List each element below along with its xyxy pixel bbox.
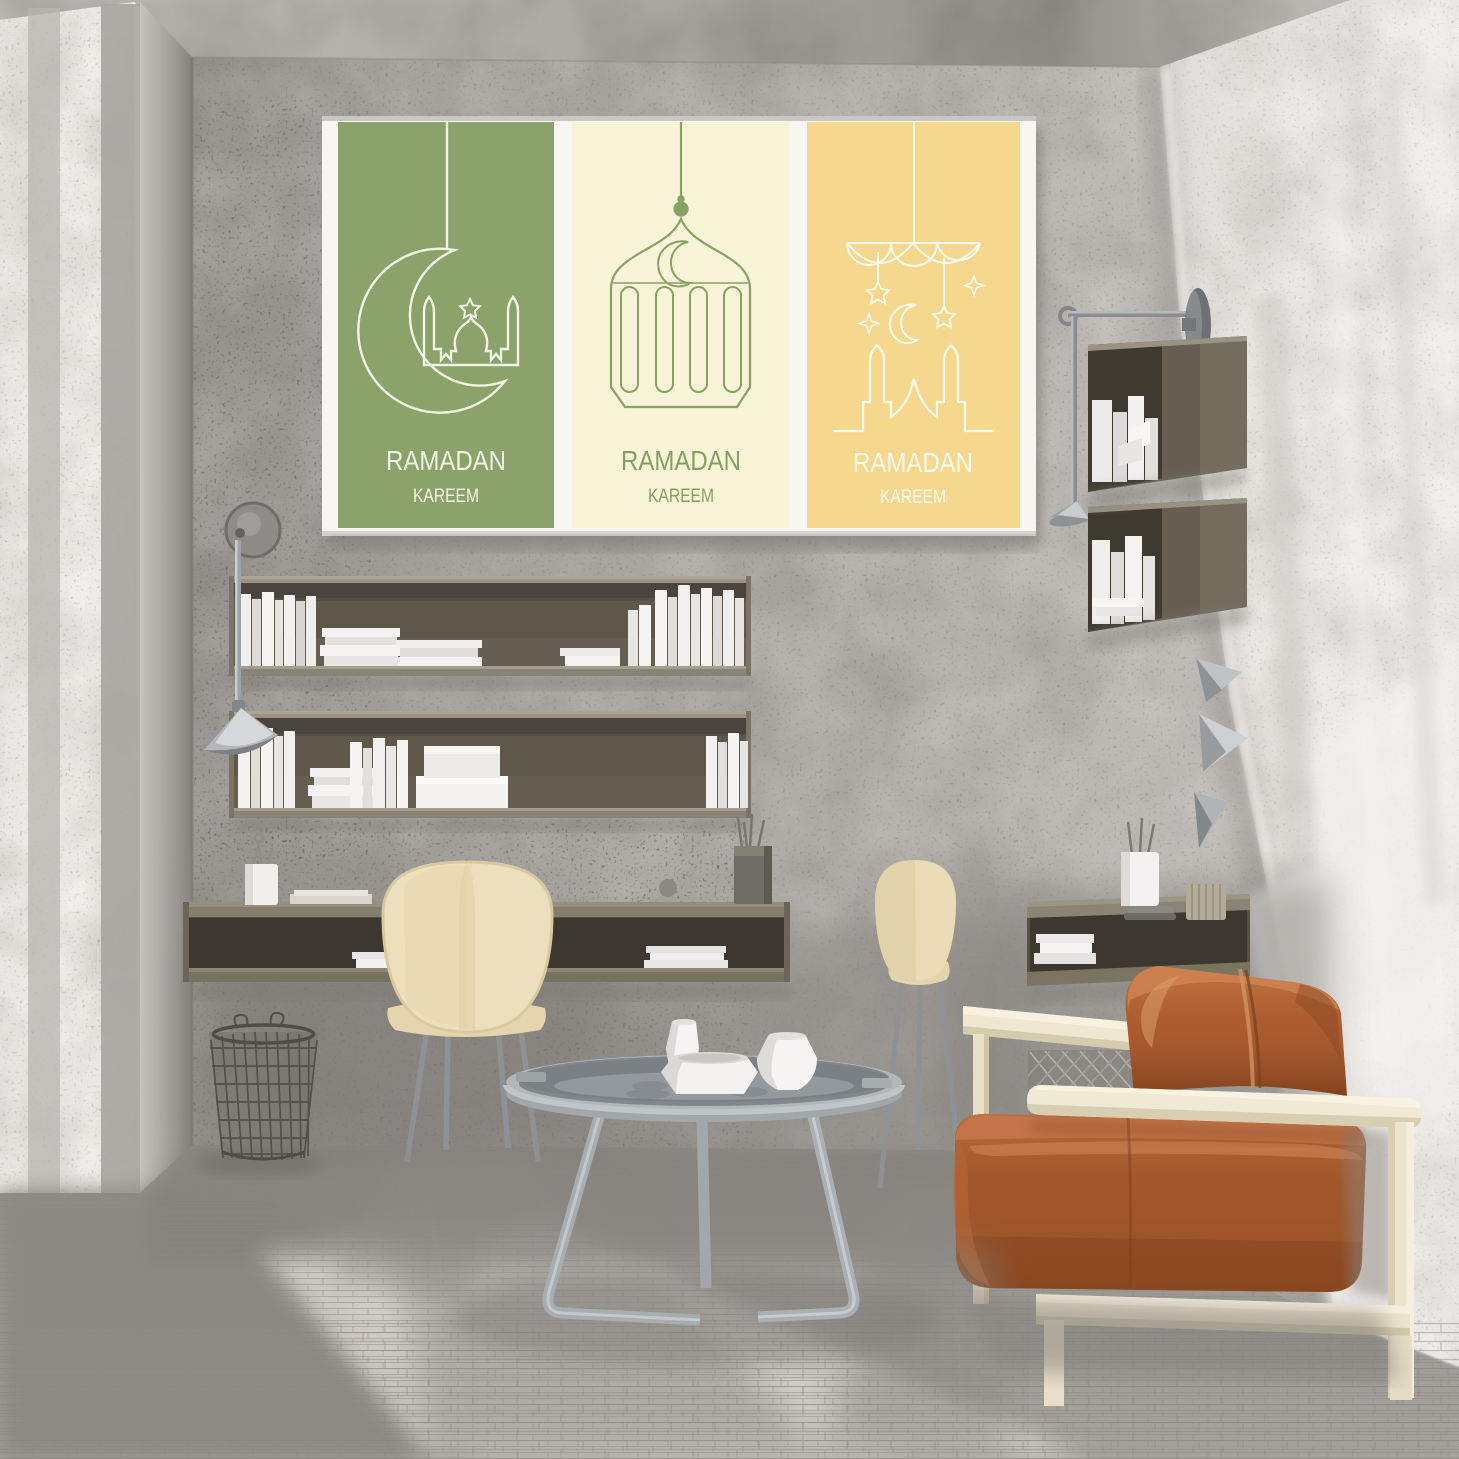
svg-text:RAMADAN: RAMADAN bbox=[853, 447, 973, 478]
svg-text:RAMADAN: RAMADAN bbox=[386, 445, 506, 476]
svg-text:RAMADAN: RAMADAN bbox=[621, 445, 741, 476]
svg-text:KAREEM: KAREEM bbox=[648, 486, 714, 507]
svg-text:KAREEM: KAREEM bbox=[413, 486, 479, 507]
svg-text:KAREEM: KAREEM bbox=[880, 487, 946, 508]
